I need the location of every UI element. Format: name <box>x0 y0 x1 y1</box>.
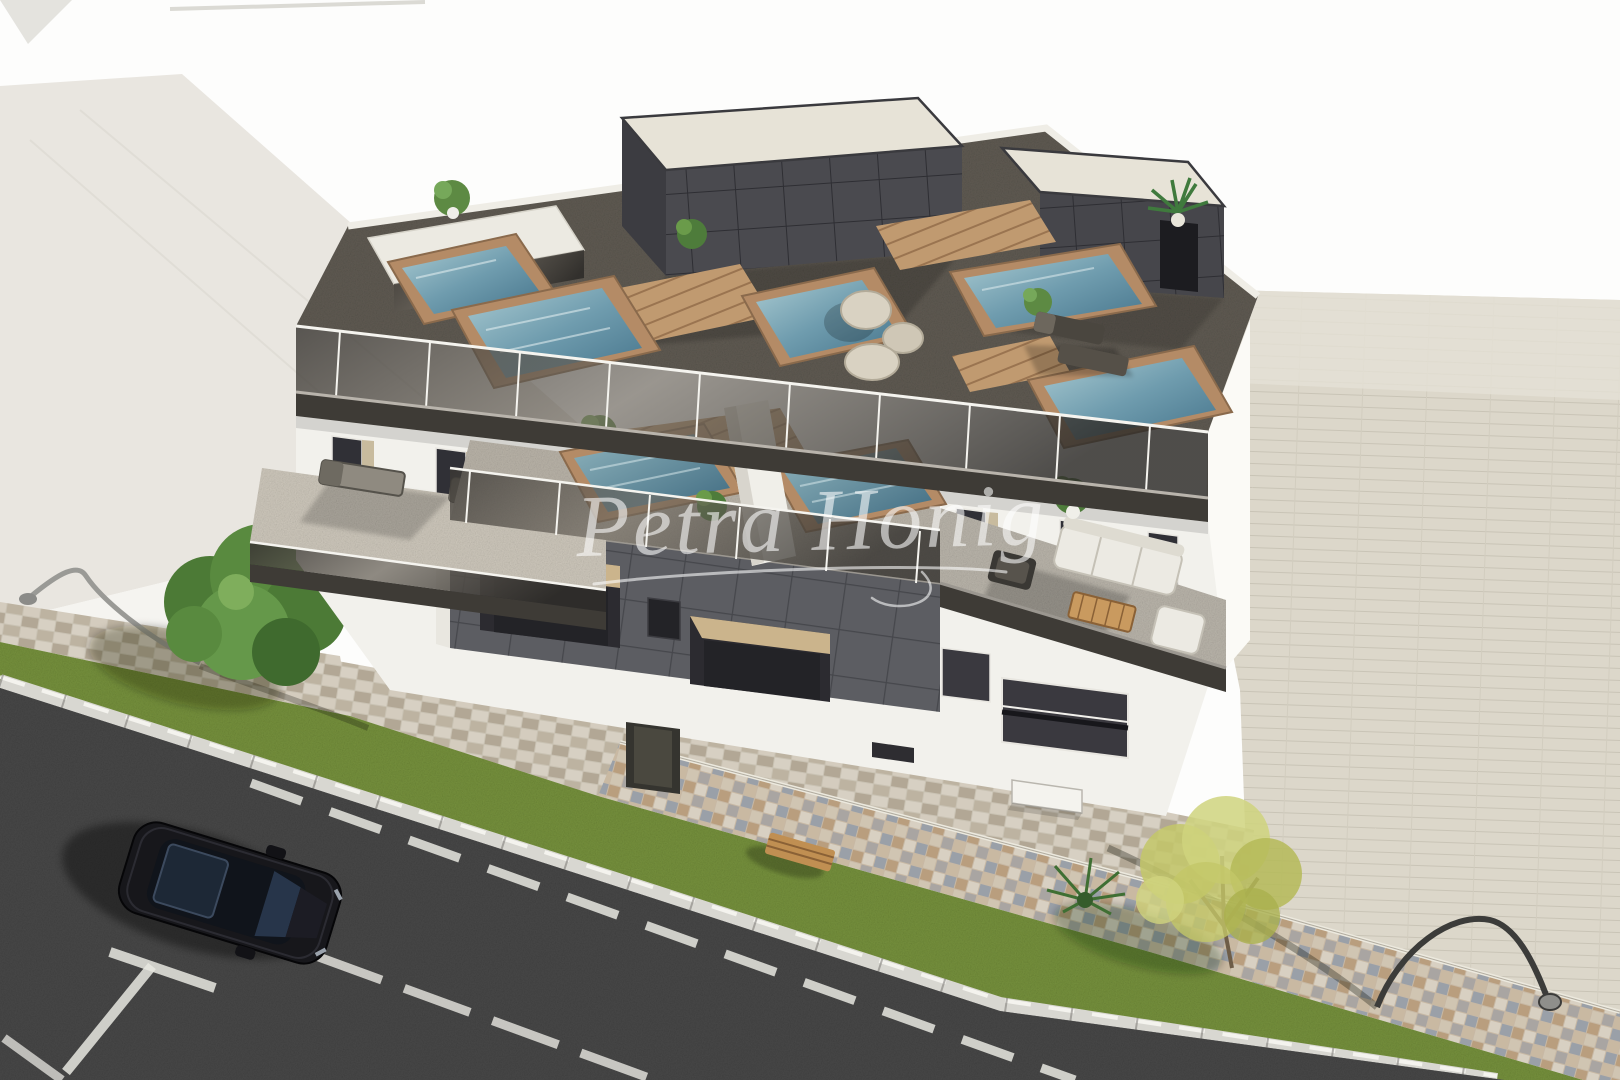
lamp-right-head <box>1539 994 1561 1010</box>
tree-green-foliage <box>166 606 222 662</box>
penthouse-door <box>1160 220 1198 292</box>
tree-yellow-foliage <box>1136 876 1184 924</box>
palm-pot <box>1171 213 1185 227</box>
tree-green-foliage <box>218 574 254 610</box>
tree-green-foliage <box>252 618 320 686</box>
lamp-left-head <box>19 593 37 605</box>
sun-lounger-back <box>1033 311 1057 335</box>
block-window-small <box>648 598 680 640</box>
entrance-door <box>626 722 680 794</box>
tree-yellow-foliage <box>1224 888 1280 944</box>
pouf <box>841 291 891 329</box>
render-svg: Petra Honig <box>0 0 1620 1080</box>
pouf <box>845 344 899 380</box>
right-facade-window-small <box>942 648 990 702</box>
render-viewport: Petra Honig <box>0 0 1620 1080</box>
watermark-text: Petra Honig <box>574 467 1048 576</box>
shrub-base <box>1077 892 1093 908</box>
